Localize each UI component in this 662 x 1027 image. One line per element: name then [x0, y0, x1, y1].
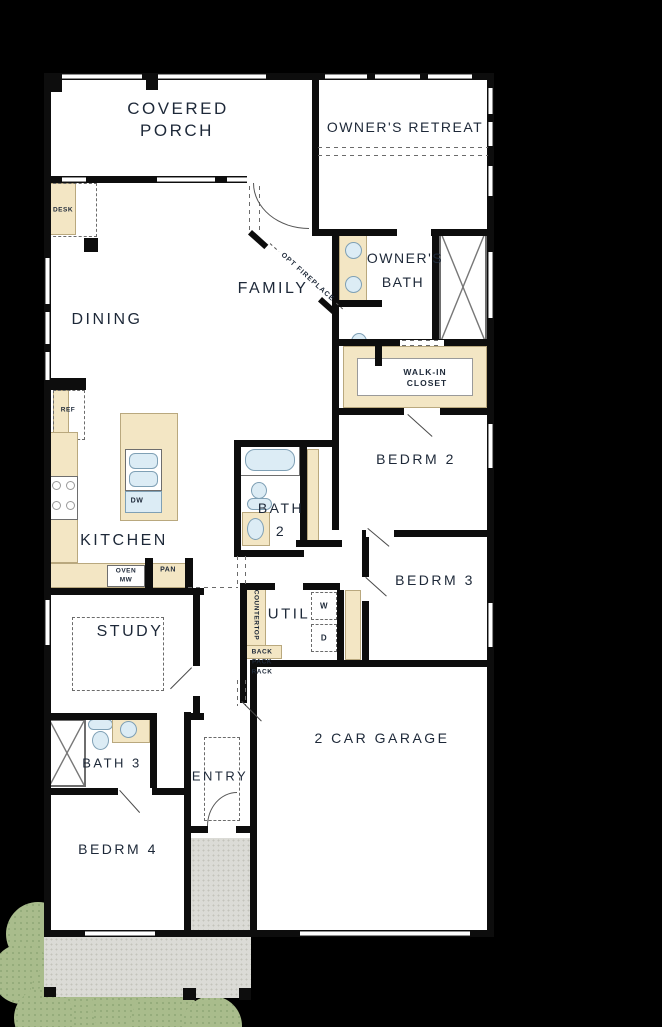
cased-opening-line [249, 186, 250, 230]
wall [152, 788, 184, 795]
window [488, 88, 493, 114]
closet-opening-line [402, 345, 442, 346]
room-label-walkin-closet: CLOSET [407, 378, 447, 388]
room-label-garage: 2 CAR GARAGE [314, 730, 449, 746]
toilet-bowl-icon [251, 482, 267, 499]
window [488, 166, 493, 196]
wall [234, 440, 334, 447]
room-label-entry: ENTRY [192, 769, 248, 784]
toilet-bowl-icon [92, 731, 109, 750]
room-label-covered-porch: PORCH [140, 121, 214, 141]
cased-opening-line [237, 556, 238, 588]
cased-opening-line [237, 680, 238, 706]
room-label-bath3: BATH 3 [82, 756, 142, 771]
label-backpack-rack: PACK [252, 659, 272, 666]
closet-opening-line [402, 340, 442, 341]
window [325, 74, 367, 79]
wall [250, 660, 494, 667]
window [45, 352, 50, 380]
wall [362, 537, 369, 577]
wall [300, 447, 307, 543]
owners-shower-icon [439, 231, 487, 343]
label-backpack-rack: BACK [252, 649, 273, 656]
optional-extension-line [318, 155, 488, 156]
wall [44, 588, 204, 595]
door-opening [404, 408, 440, 415]
toilet-tank-icon [88, 719, 113, 730]
walkway-post [183, 988, 196, 1000]
burner-icon [66, 481, 75, 490]
walkway-post [239, 988, 251, 1000]
wall [240, 583, 247, 645]
sink-icon [345, 276, 362, 293]
bathtub-basin-icon [245, 449, 295, 471]
room-label-bath2: 2 [276, 523, 286, 539]
wall [487, 73, 494, 937]
label-countertop: COUNTERTOP [253, 590, 260, 640]
wall [337, 590, 344, 662]
label-mw: MW [120, 577, 133, 584]
window [45, 600, 50, 645]
window [488, 122, 493, 146]
porch-post [48, 73, 62, 92]
window [158, 74, 266, 79]
wall [145, 558, 153, 592]
window [428, 74, 472, 79]
room-label-covered-porch: COVERED [127, 99, 229, 119]
label-ref: REF [61, 407, 76, 414]
label-pan: PAN [160, 567, 176, 574]
sink-icon [247, 518, 264, 540]
room-label-util: UTIL [268, 606, 311, 623]
room-label-kitchen: KITCHEN [80, 532, 168, 550]
label-dryer: D [321, 634, 327, 643]
cased-opening-line [245, 556, 246, 588]
wall [44, 713, 157, 720]
wall [432, 229, 439, 345]
door-opening [275, 583, 303, 590]
wall [44, 73, 51, 937]
sink-icon [120, 721, 137, 738]
wall [332, 236, 339, 346]
sink-basin-icon [129, 471, 158, 487]
optional-extension-line [318, 147, 488, 148]
room-label-owners-bath: OWNER'S [367, 250, 443, 266]
bath3-shower-icon [48, 719, 86, 787]
front-walkway [44, 937, 251, 997]
wall [184, 712, 191, 937]
window [62, 74, 142, 79]
room-label-bedrm2: BEDRM 2 [376, 451, 456, 467]
room-label-owners-bath: BATH [382, 274, 424, 290]
wall [234, 440, 241, 557]
room-label-walkin-closet: WALK-IN [403, 367, 446, 377]
wall [184, 826, 208, 833]
room-label-family: FAMILY [238, 280, 309, 298]
room-label-bedrm4: BEDRM 4 [78, 841, 158, 857]
cased-opening-line [188, 587, 238, 588]
label-oven: OVEN [116, 568, 136, 575]
window [157, 177, 215, 182]
sink-basin-icon [129, 453, 158, 469]
window [488, 603, 493, 647]
room-label-study: STUDY [97, 623, 164, 641]
door-opening [397, 229, 431, 236]
wall [362, 601, 369, 667]
wall [332, 346, 339, 416]
burner-icon [52, 501, 61, 510]
room-label-dining: DINING [72, 311, 143, 329]
label-desk: DESK [53, 207, 73, 214]
window [45, 312, 50, 344]
bedrm3-closet [345, 590, 361, 660]
wall [84, 238, 98, 252]
bath2-linen [307, 449, 319, 541]
window [488, 424, 493, 468]
wall [44, 378, 86, 390]
cased-opening-line [245, 680, 246, 706]
room-label-owners-retreat: OWNER'S RETREAT [327, 119, 483, 135]
room-label-bedrm3: BEDRM 3 [395, 572, 475, 588]
door-opening [204, 713, 240, 720]
porch-post [146, 73, 158, 90]
window [85, 931, 155, 936]
door-opening [247, 176, 307, 183]
room-label-bath2: BATH [258, 500, 304, 516]
sink-icon [345, 242, 362, 259]
wall [250, 667, 257, 937]
label-washer: W [320, 602, 328, 611]
burner-icon [52, 481, 61, 490]
walkway-post [44, 987, 56, 997]
window [227, 177, 247, 182]
label-dw: DW [131, 498, 144, 505]
garage-door [300, 931, 470, 936]
wall [150, 713, 157, 795]
label-backpack-rack: RACK [252, 669, 273, 676]
front-door-opening [208, 826, 236, 833]
wall [236, 826, 257, 833]
wall [44, 788, 118, 795]
burner-icon [66, 501, 75, 510]
window [62, 177, 86, 182]
wall [332, 415, 339, 530]
window [45, 258, 50, 304]
floor-plan-canvas: COVERED PORCH OWNER'S RETREAT FAMILY DIN… [0, 0, 662, 1027]
window [488, 252, 493, 318]
window [375, 74, 420, 79]
door-opening [193, 666, 200, 696]
wall [375, 346, 382, 366]
